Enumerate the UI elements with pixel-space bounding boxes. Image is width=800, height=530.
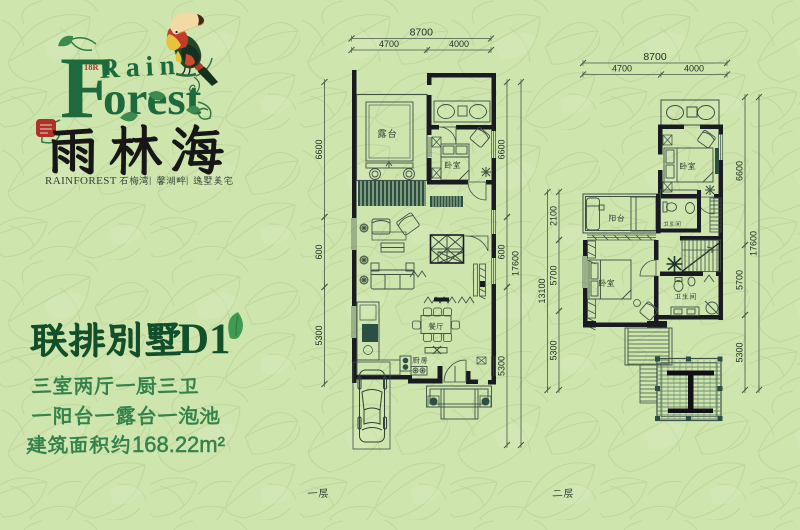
svg-text:17600: 17600	[511, 251, 521, 276]
svg-text:600: 600	[497, 244, 507, 259]
svg-text:5700: 5700	[549, 265, 559, 285]
svg-text:2100: 2100	[549, 206, 559, 226]
svg-text:168.22m²: 168.22m²	[132, 432, 225, 457]
svg-text:600: 600	[314, 244, 324, 259]
svg-text:6600: 6600	[314, 139, 324, 159]
svg-text:Rain: Rain	[99, 50, 182, 85]
svg-text:6600: 6600	[497, 139, 507, 159]
svg-text:RAINFOREST: RAINFOREST	[45, 175, 117, 187]
svg-text:4700: 4700	[379, 39, 399, 49]
svg-text:5300: 5300	[497, 356, 507, 376]
svg-text:4000: 4000	[684, 64, 704, 74]
svg-text:4000: 4000	[449, 39, 469, 49]
svg-text:5300: 5300	[314, 325, 324, 345]
svg-text:5300: 5300	[549, 340, 559, 360]
svg-text:5700: 5700	[735, 270, 745, 290]
svg-text:5300: 5300	[735, 342, 745, 362]
svg-text:18R: 18R	[84, 62, 100, 72]
svg-text:|: |	[186, 175, 188, 185]
svg-text:13100: 13100	[537, 278, 547, 303]
svg-text:D1: D1	[178, 316, 231, 363]
svg-text:8700: 8700	[410, 27, 434, 39]
svg-text:|: |	[149, 175, 151, 185]
svg-text:4700: 4700	[612, 64, 632, 74]
svg-text:6600: 6600	[735, 161, 745, 181]
svg-text:17600: 17600	[749, 231, 759, 256]
svg-text:8700: 8700	[643, 51, 667, 63]
